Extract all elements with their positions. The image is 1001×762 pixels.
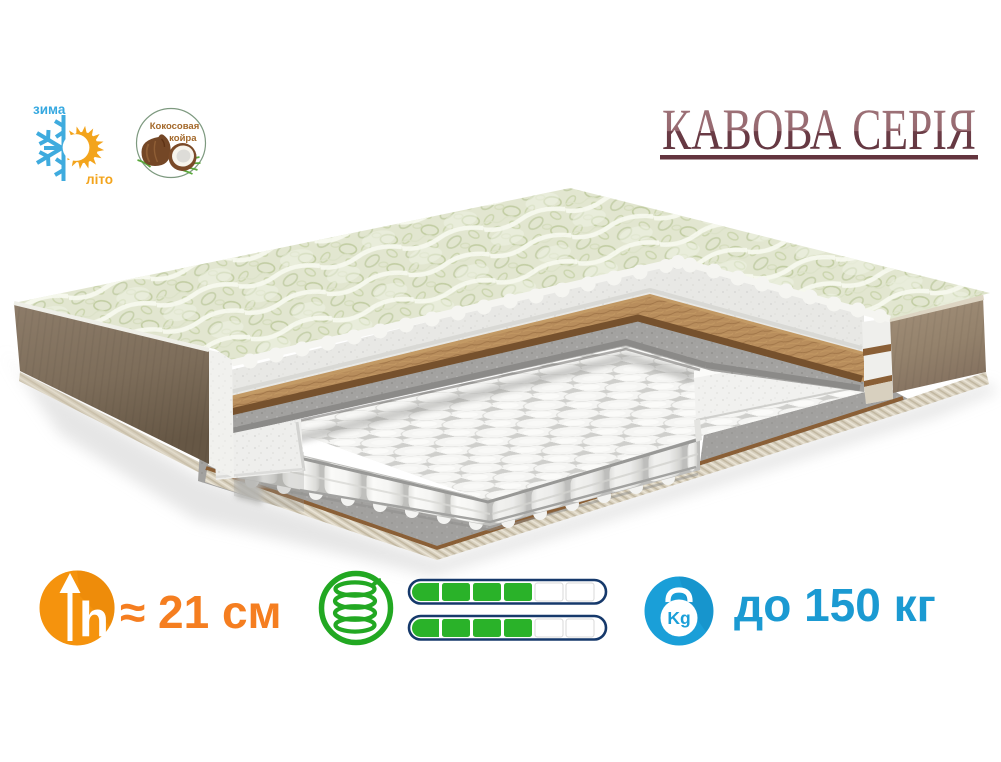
svg-text:літо: літо xyxy=(86,172,113,187)
svg-text:Кокосовая: Кокосовая xyxy=(150,121,200,132)
svg-text:h: h xyxy=(79,593,109,647)
svg-text:≈ 21 см: ≈ 21 см xyxy=(120,586,282,638)
svg-text:зима: зима xyxy=(33,102,66,117)
svg-text:КАВОВА СЕРІЯ: КАВОВА СЕРІЯ xyxy=(662,97,976,162)
svg-text:койра: койра xyxy=(169,133,197,144)
svg-text:Kg: Kg xyxy=(667,608,690,628)
svg-text:до 150 кг: до 150 кг xyxy=(734,579,936,631)
